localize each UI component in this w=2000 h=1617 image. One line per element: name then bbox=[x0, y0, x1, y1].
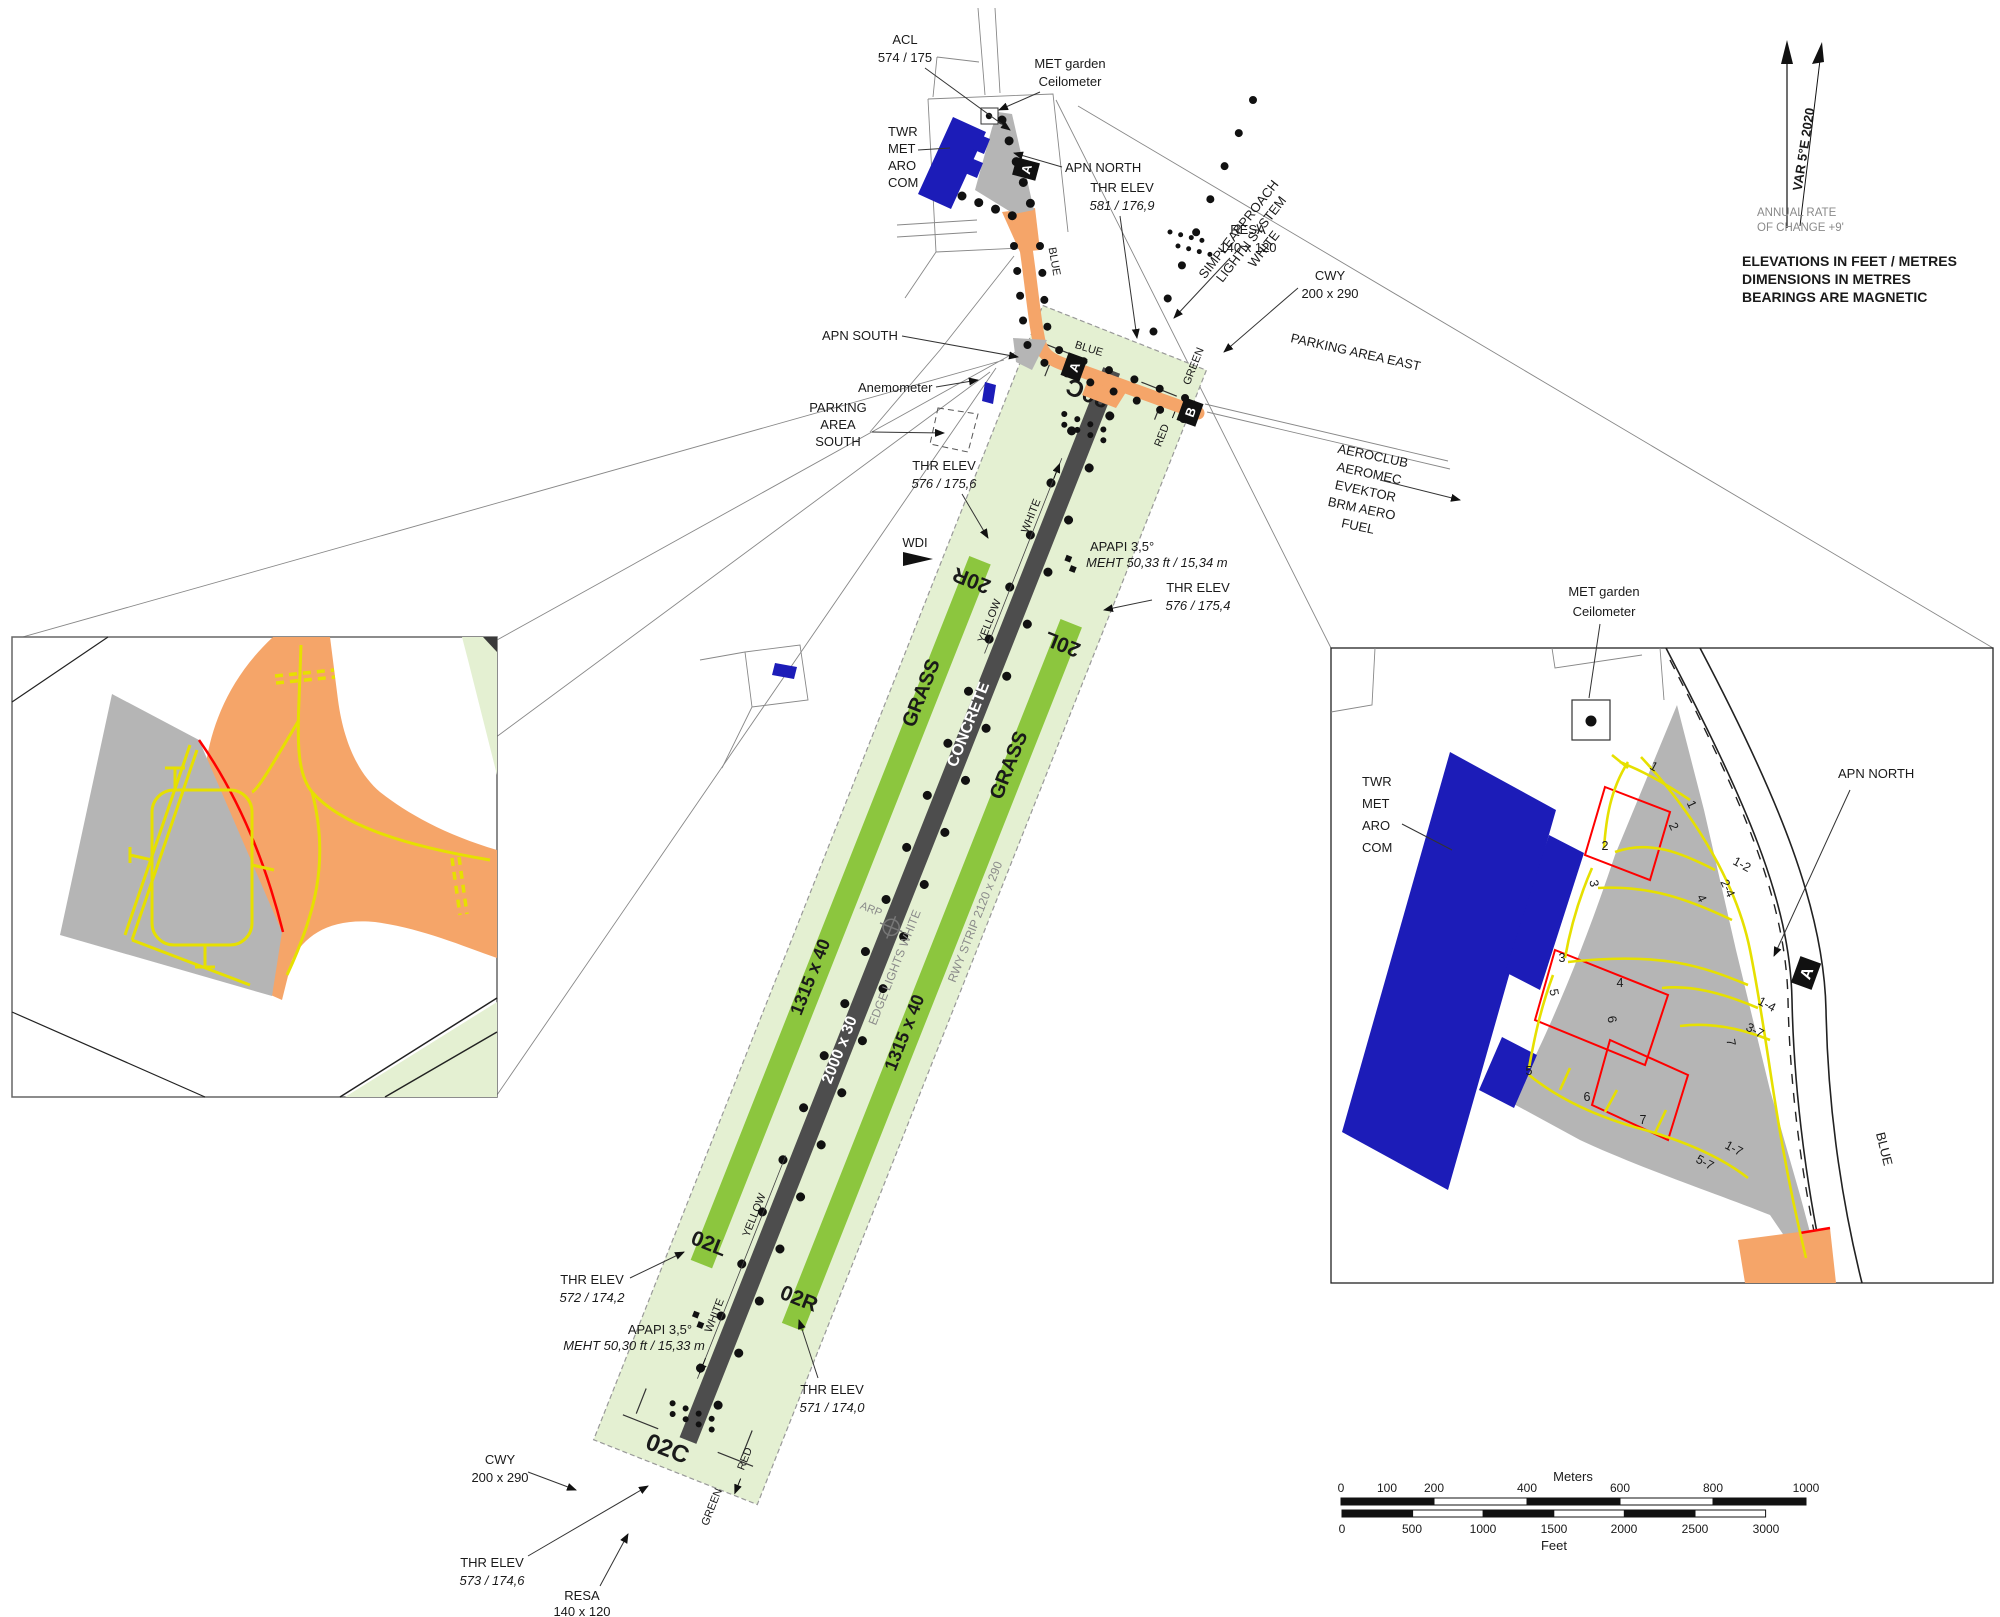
annual-rate-line2: OF CHANGE +9' bbox=[1757, 222, 1844, 234]
svg-text:VAR 5°E 2020: VAR 5°E 2020 bbox=[1790, 107, 1818, 192]
svg-text:500: 500 bbox=[1402, 1522, 1422, 1536]
apapi-s-label: APAPI 3,5° bbox=[628, 1322, 692, 1337]
svg-text:PARKING AREA EAST: PARKING AREA EAST bbox=[1289, 330, 1422, 373]
meters-bar bbox=[1341, 1498, 1806, 1505]
twr-line3: ARO bbox=[888, 158, 916, 173]
note-elevations: ELEVATIONS IN FEET / METRES bbox=[1742, 253, 1957, 269]
svg-text:1000: 1000 bbox=[1470, 1522, 1497, 1536]
ceilometer-detail-label: Ceilometer bbox=[1573, 604, 1637, 619]
wdi-label: WDI bbox=[902, 535, 927, 550]
svg-text:1500: 1500 bbox=[1541, 1522, 1568, 1536]
ceilometer-label: Ceilometer bbox=[1039, 74, 1103, 89]
feet-ticks: 0 500 1000 1500 2000 2500 3000 bbox=[1339, 1522, 1780, 1536]
thr-elev-02l-value: 572 / 174,2 bbox=[559, 1290, 625, 1305]
svg-text:800: 800 bbox=[1703, 1481, 1723, 1495]
apron-north-taxiway-throat bbox=[1002, 208, 1040, 252]
tenants-block: AEROCLUB AEROMEC EVEKTOR BRM AERO FUEL bbox=[1321, 441, 1409, 541]
anemometer-label: Anemometer bbox=[858, 380, 933, 395]
twr-line1: TWR bbox=[888, 124, 918, 139]
apapi-n-label: APAPI 3,5° bbox=[1090, 539, 1154, 554]
svg-text:200: 200 bbox=[1424, 1481, 1444, 1495]
svg-text:6: 6 bbox=[1584, 1090, 1591, 1104]
green-label-s: GREEN bbox=[699, 1487, 725, 1528]
inset-apron-north: 1 1 2 2 3 4 3 4 5 6 7 5 6 7 1-2 2-4 1-4 … bbox=[1331, 584, 1993, 1283]
svg-text:100: 100 bbox=[1377, 1481, 1397, 1495]
resa-s-dim: 140 x 120 bbox=[553, 1604, 610, 1617]
inset-apron-south bbox=[12, 637, 497, 1097]
met-garden-detail-label: MET garden bbox=[1568, 584, 1639, 599]
svg-text:400: 400 bbox=[1517, 1481, 1537, 1495]
var-label: VAR 5°E 2020 bbox=[1790, 107, 1818, 192]
annual-rate-line1: ANNUAL RATE bbox=[1757, 207, 1837, 219]
svg-text:2500: 2500 bbox=[1682, 1522, 1709, 1536]
thr-elev-20l-value: 576 / 175,4 bbox=[1165, 598, 1230, 613]
parking-area-south-outline bbox=[930, 408, 978, 452]
thr-elev-20l-label: THR ELEV bbox=[1166, 580, 1230, 595]
twr-detail-line4: COM bbox=[1362, 840, 1392, 855]
twr-line2: MET bbox=[888, 141, 916, 156]
note-dimensions: DIMENSIONS IN METRES bbox=[1742, 271, 1911, 287]
cwy-n-dim: 200 x 290 bbox=[1301, 286, 1358, 301]
svg-text:4: 4 bbox=[1617, 976, 1624, 990]
cwy-s-label: CWY bbox=[485, 1452, 516, 1467]
met-garden-detail bbox=[1572, 700, 1610, 740]
hangar-south-building bbox=[772, 663, 797, 679]
svg-text:7: 7 bbox=[1640, 1113, 1647, 1127]
thr-elev-20c-label: THR ELEV bbox=[1090, 180, 1154, 195]
thr-elev-20r-label: THR ELEV bbox=[912, 458, 976, 473]
svg-text:2000: 2000 bbox=[1611, 1522, 1638, 1536]
aerodrome-chart: ARP 20C 02C 20R 20L 02L 02R GRASS GRASS … bbox=[0, 0, 2000, 1617]
apn-south-label: APN SOUTH bbox=[822, 328, 898, 343]
cwy-n-label: CWY bbox=[1315, 268, 1346, 283]
resa-s-label: RESA bbox=[564, 1588, 600, 1603]
twr-detail-line1: TWR bbox=[1362, 774, 1392, 789]
svg-text:3: 3 bbox=[1559, 951, 1566, 965]
blue-taxiway-label-1: BLUE bbox=[1046, 246, 1063, 276]
svg-text:1000: 1000 bbox=[1793, 1481, 1820, 1495]
svg-text:3000: 3000 bbox=[1753, 1522, 1780, 1536]
twr-detail-line3: ARO bbox=[1362, 818, 1390, 833]
feet-bar bbox=[1342, 1510, 1766, 1517]
note-bearings: BEARINGS ARE MAGNETIC bbox=[1742, 289, 1927, 305]
thr-elev-20r-value: 576 / 175,6 bbox=[911, 476, 977, 491]
thr-elev-02c-value: 573 / 174,6 bbox=[459, 1573, 525, 1588]
apapi-s-meht: MEHT 50,30 ft / 15,33 m bbox=[563, 1338, 705, 1353]
svg-text:0: 0 bbox=[1338, 1481, 1345, 1495]
svg-text:0: 0 bbox=[1339, 1522, 1346, 1536]
thr-elev-20c-value: 581 / 176,9 bbox=[1089, 198, 1154, 213]
apn-north-label: APN NORTH bbox=[1065, 160, 1141, 175]
parking-area-east-label: PARKING AREA EAST bbox=[1289, 330, 1422, 373]
svg-text:5: 5 bbox=[1526, 1064, 1533, 1078]
parking-south-line3: SOUTH bbox=[815, 434, 861, 449]
svg-text:600: 600 bbox=[1610, 1481, 1630, 1495]
twr-detail-line2: MET bbox=[1362, 796, 1390, 811]
parking-south-line2: AREA bbox=[820, 417, 856, 432]
twr-line4: COM bbox=[888, 175, 918, 190]
feet-title: Feet bbox=[1541, 1538, 1567, 1553]
thr-elev-02r-value: 571 / 174,0 bbox=[799, 1400, 865, 1415]
met-garden-label: MET garden bbox=[1034, 56, 1105, 71]
apn-north-detail-label: APN NORTH bbox=[1838, 766, 1914, 781]
acl-label: ACL bbox=[892, 32, 917, 47]
concrete-runway-02c-20c bbox=[680, 367, 1120, 1444]
parking-south-line1: PARKING bbox=[809, 400, 867, 415]
wdi-symbol bbox=[903, 552, 933, 566]
svg-text:BLUE: BLUE bbox=[1046, 246, 1063, 276]
cwy-s-dim: 200 x 290 bbox=[471, 1470, 528, 1485]
thr-elev-02c-label: THR ELEV bbox=[460, 1555, 524, 1570]
thr-elev-02l-label: THR ELEV bbox=[560, 1272, 624, 1287]
svg-text:2: 2 bbox=[1602, 839, 1609, 853]
acl-value: 574 / 175 bbox=[878, 50, 932, 65]
meters-title: Meters bbox=[1553, 1469, 1593, 1484]
scale-bars: Meters 0 100 200 400 600 800 1000 0 bbox=[1338, 1469, 1820, 1553]
thr-elev-02r-label: THR ELEV bbox=[800, 1382, 864, 1397]
svg-text:FUEL: FUEL bbox=[1340, 515, 1376, 537]
apapi-n-meht: MEHT 50,33 ft / 15,34 m bbox=[1086, 555, 1228, 570]
